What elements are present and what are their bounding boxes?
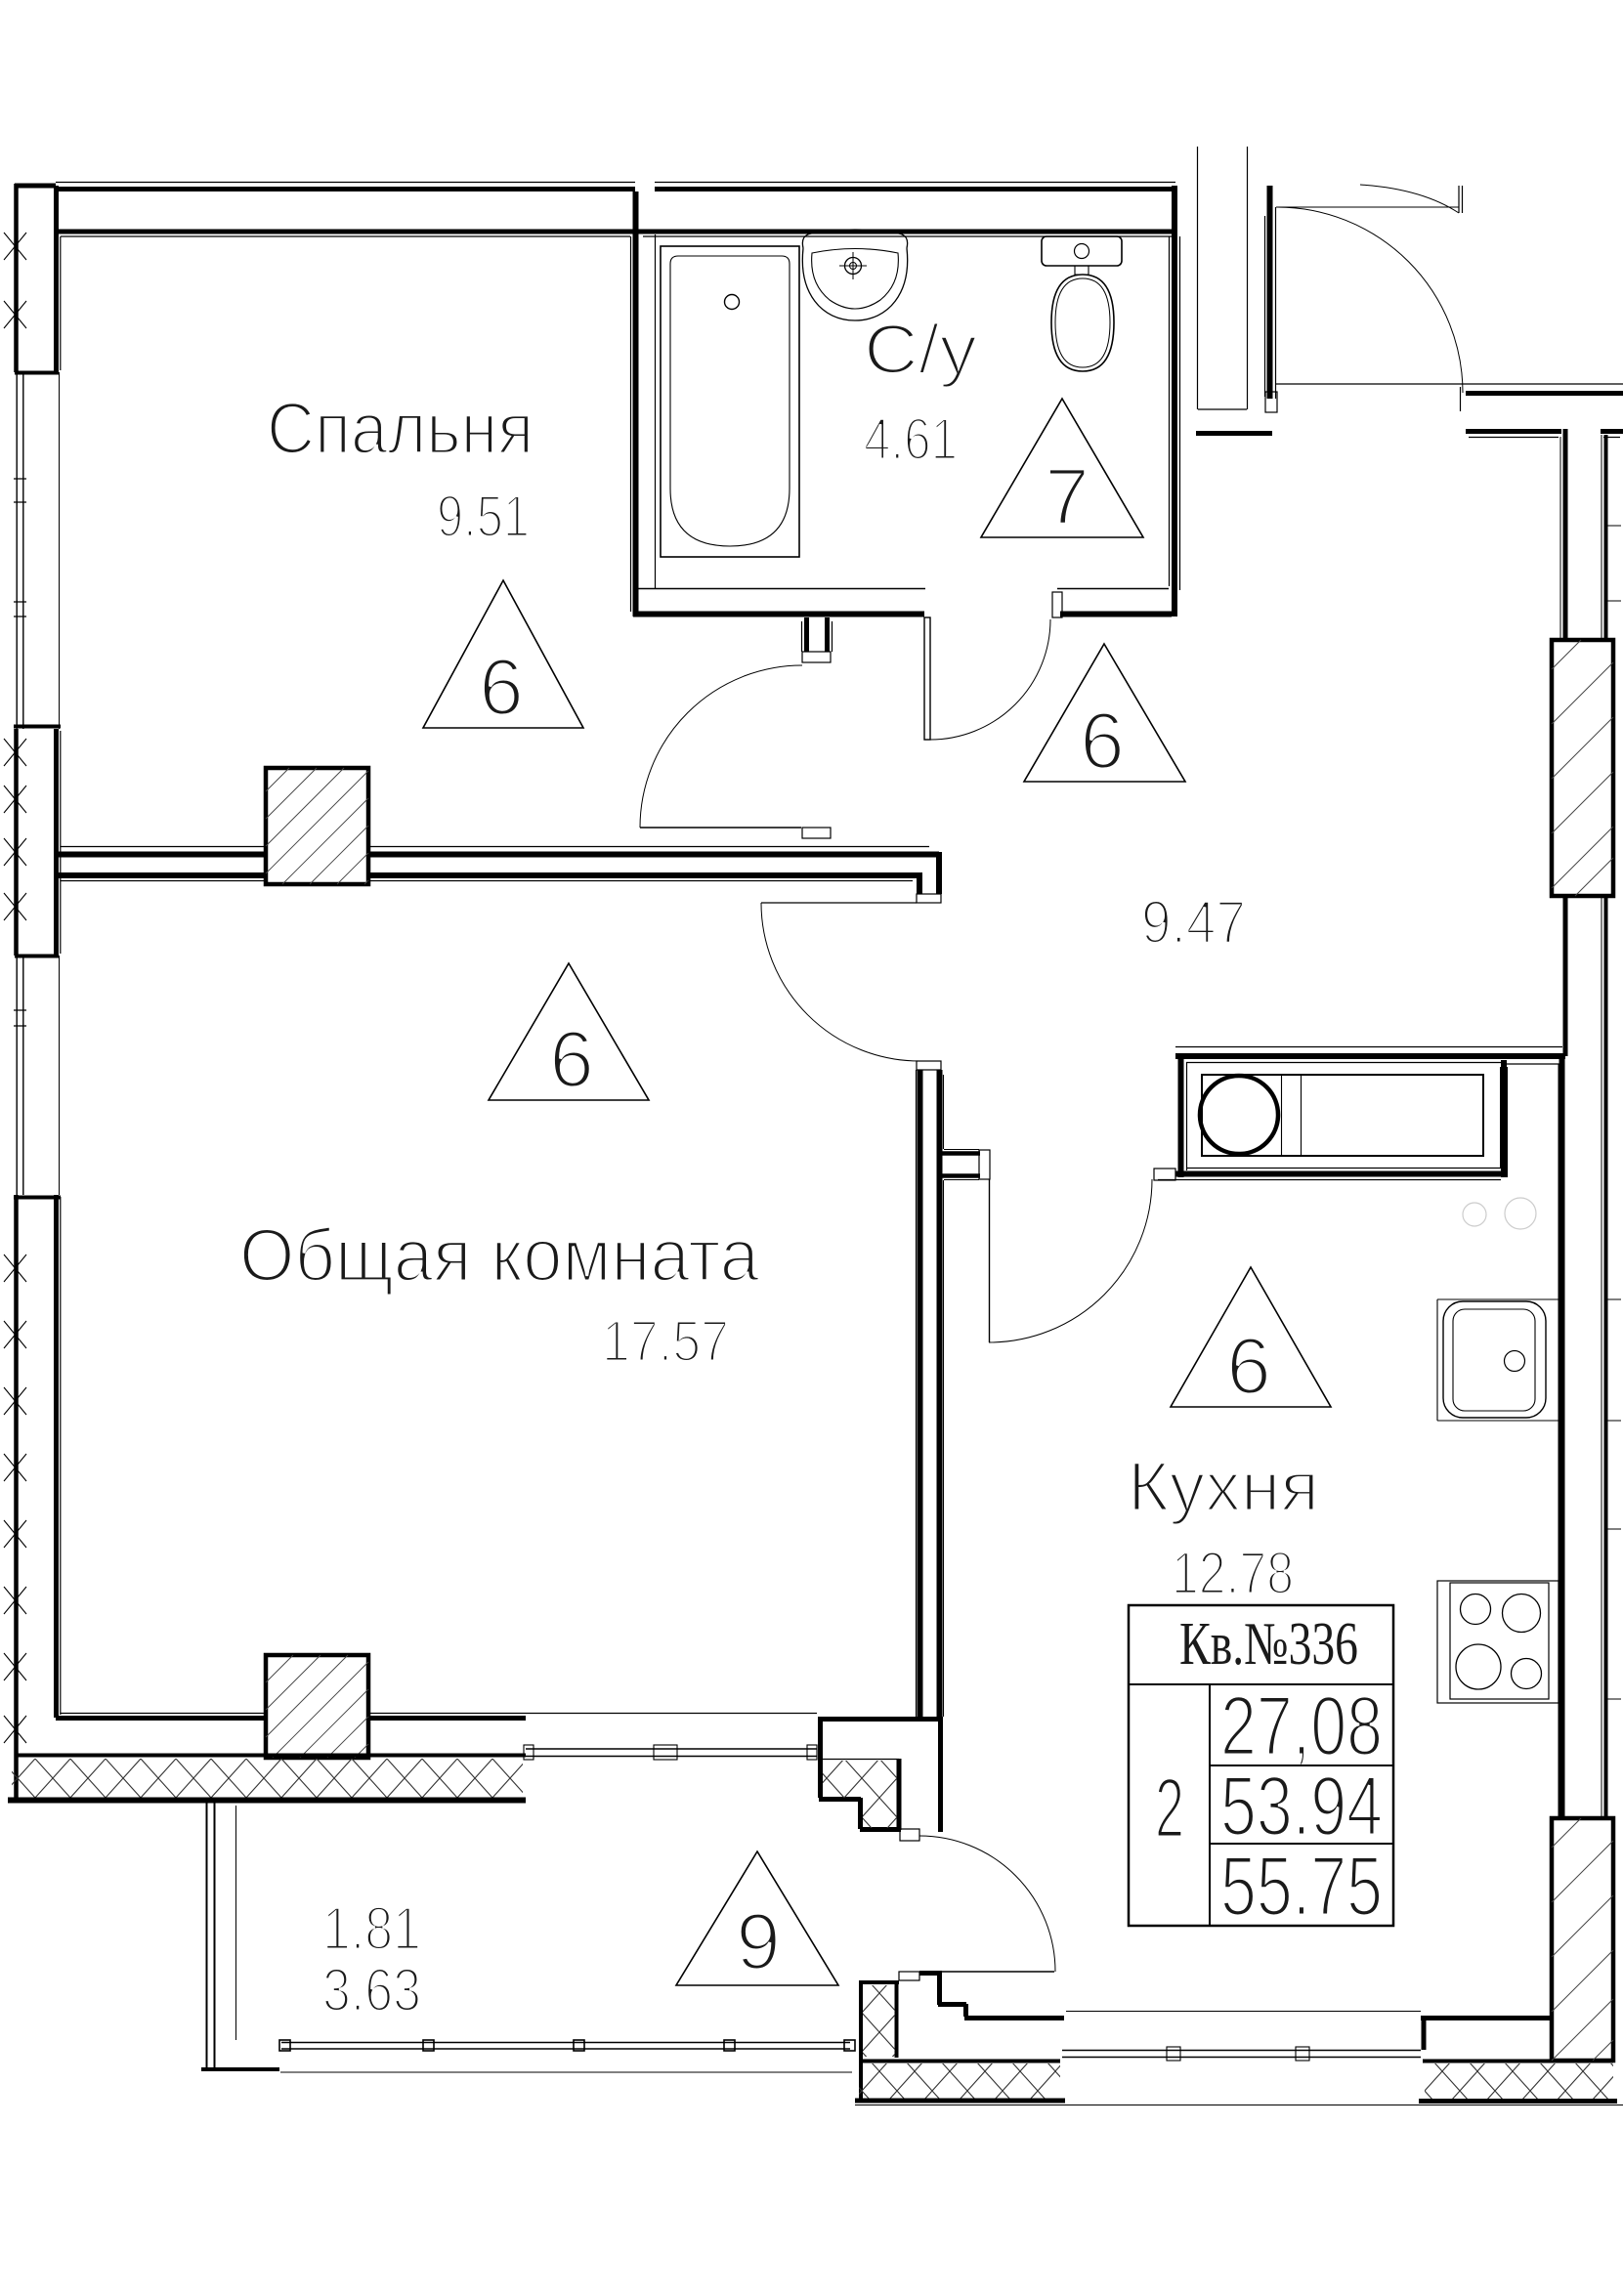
svg-text:6: 6 xyxy=(549,1015,594,1104)
svg-text:2: 2 xyxy=(1155,1762,1184,1855)
svg-text:Кв.№336: Кв.№336 xyxy=(1179,1611,1358,1678)
svg-text:4.61: 4.61 xyxy=(864,406,958,472)
svg-text:Кухня: Кухня xyxy=(1128,1449,1319,1526)
svg-text:17.57: 17.57 xyxy=(602,1309,729,1374)
svg-text:9.47: 9.47 xyxy=(1141,889,1246,957)
svg-text:1.81: 1.81 xyxy=(322,1895,421,1963)
svg-text:9: 9 xyxy=(736,1897,781,1986)
svg-text:С/у: С/у xyxy=(864,312,978,389)
svg-text:55.75: 55.75 xyxy=(1220,1840,1383,1934)
svg-text:6: 6 xyxy=(479,643,524,732)
svg-text:12.78: 12.78 xyxy=(1172,1540,1294,1606)
svg-text:3.63: 3.63 xyxy=(322,1957,421,2024)
svg-text:Спальня: Спальня xyxy=(267,388,534,469)
svg-text:Общая комната: Общая комната xyxy=(239,1214,760,1297)
svg-text:7: 7 xyxy=(1045,452,1089,541)
svg-text:9.51: 9.51 xyxy=(437,484,530,549)
svg-text:6: 6 xyxy=(1226,1322,1271,1411)
svg-text:6: 6 xyxy=(1080,697,1125,786)
